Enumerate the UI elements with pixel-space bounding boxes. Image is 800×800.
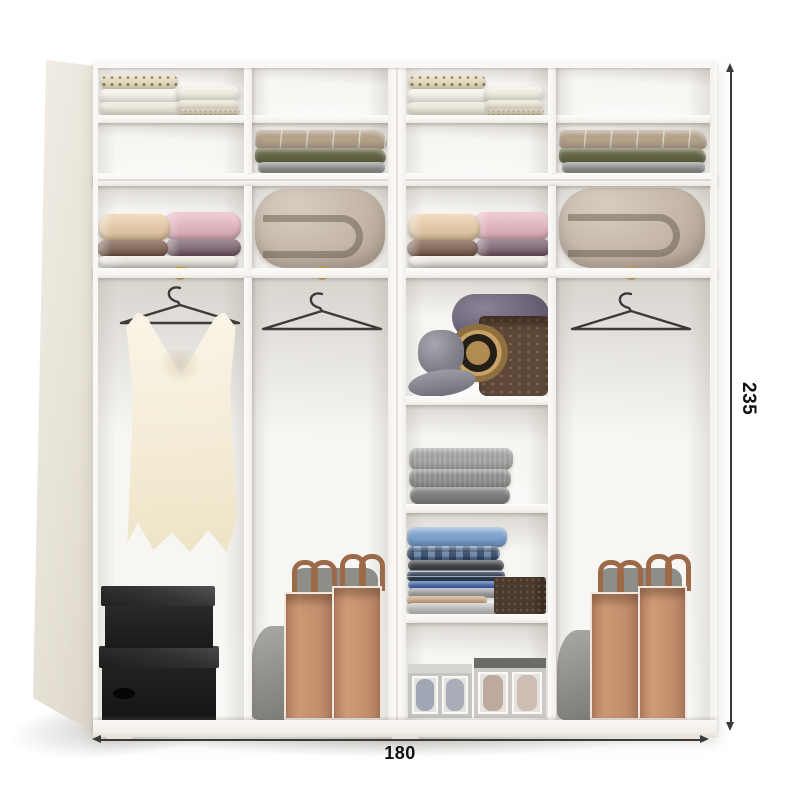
organizer-1-window-1 — [412, 676, 438, 714]
white-sheet-a1 — [99, 89, 181, 103]
duvet-fold-b — [568, 214, 680, 257]
towel-plum-a — [165, 239, 241, 256]
width-arrow-right-icon — [700, 735, 709, 743]
towel-peach-a — [98, 214, 170, 241]
organizer-box-1 — [408, 664, 472, 718]
storage-bag-tan-b2 — [638, 586, 687, 720]
towel-pink-a — [163, 212, 241, 240]
fedora-hat — [408, 330, 476, 396]
b-column-shelf-3 — [406, 614, 548, 623]
duvet-roll-b — [559, 188, 705, 268]
blanket-olive-b — [559, 148, 706, 163]
cell-a-row1-right — [252, 67, 388, 115]
organizer-2-lid — [474, 658, 546, 668]
towel-peach-b — [408, 214, 480, 241]
towel-brown-a — [97, 240, 168, 257]
duvet-fold-a — [263, 215, 364, 257]
blanket-taupe-a — [255, 130, 387, 149]
storage-bag-tan-a1 — [284, 592, 334, 720]
height-arrow-down-icon — [726, 722, 734, 731]
storage-bag-tan-b1 — [590, 592, 640, 720]
white-sheet-b1 — [407, 89, 489, 103]
organizer-1-lid — [408, 664, 472, 673]
wardrobe-dimension-diagram: 235 180 — [0, 0, 800, 800]
divider-b-top — [548, 67, 556, 173]
organizer-box-2 — [474, 658, 546, 718]
garment-vneck-shade — [150, 350, 210, 420]
cell-a-row2-left — [97, 123, 244, 173]
dotted-roll-a — [100, 74, 178, 90]
organizer-2-window-1 — [478, 672, 508, 714]
empty-hanger-a-icon — [256, 290, 388, 340]
towel-white-a — [98, 256, 238, 268]
blanket-taupe-b — [559, 130, 707, 149]
black-box-handle-hole — [113, 688, 135, 699]
cell-b-row2-left — [406, 123, 548, 173]
pillow-b1 — [484, 86, 544, 101]
width-arrow-left-icon — [92, 735, 101, 743]
module-gap-seam — [396, 63, 398, 720]
height-arrow-up-icon — [726, 63, 734, 72]
organizer-2-window-2 — [512, 672, 542, 714]
knit-grey-2 — [409, 469, 511, 488]
frame-left — [93, 63, 98, 737]
divider-a-top — [244, 67, 252, 173]
knit-grey-3 — [410, 487, 510, 504]
pillow-a1 — [176, 86, 240, 101]
b-column-shelf-1 — [406, 396, 548, 405]
towel-brown-b — [407, 240, 478, 257]
organizer-1-window-2 — [442, 676, 468, 714]
white-sheet-a2 — [99, 102, 183, 115]
frame-top — [93, 63, 717, 68]
side-panel — [30, 58, 96, 740]
base-board — [93, 720, 717, 737]
duvet-roll-a — [255, 189, 385, 268]
blanket-olive-a — [255, 148, 386, 163]
dotted-roll-b — [408, 74, 486, 90]
blanket-grey-a — [258, 162, 385, 173]
storage-bag-tan-a2 — [332, 586, 382, 720]
divider-b-mid — [548, 186, 556, 268]
divider-b-tall — [548, 278, 556, 720]
frame-right — [711, 63, 717, 737]
height-dimension-line — [730, 70, 732, 724]
empty-hanger-b-icon — [565, 290, 697, 340]
b-column-shelf-2 — [406, 504, 548, 513]
brown-textured-box — [494, 577, 546, 614]
black-box-upper-lid — [101, 586, 215, 606]
cell-b-row1-right — [556, 67, 710, 115]
black-box-lower-lid — [99, 646, 219, 668]
towel-pink-b — [473, 212, 551, 240]
towel-plum-b — [475, 239, 551, 256]
height-dimension-label: 235 — [733, 370, 763, 428]
width-dimension-line — [99, 739, 702, 741]
white-sheet-b2 — [407, 102, 491, 115]
divider-a-tall — [244, 278, 252, 720]
shirt-plaid — [407, 546, 500, 561]
knit-grey-1 — [409, 448, 513, 470]
towel-white-b — [408, 256, 548, 268]
black-box-upper-body — [105, 604, 213, 648]
shirt-lightblue — [407, 527, 507, 547]
blanket-grey-b — [562, 162, 705, 173]
width-dimension-label: 180 — [368, 743, 432, 764]
divider-a-mid — [244, 186, 252, 268]
